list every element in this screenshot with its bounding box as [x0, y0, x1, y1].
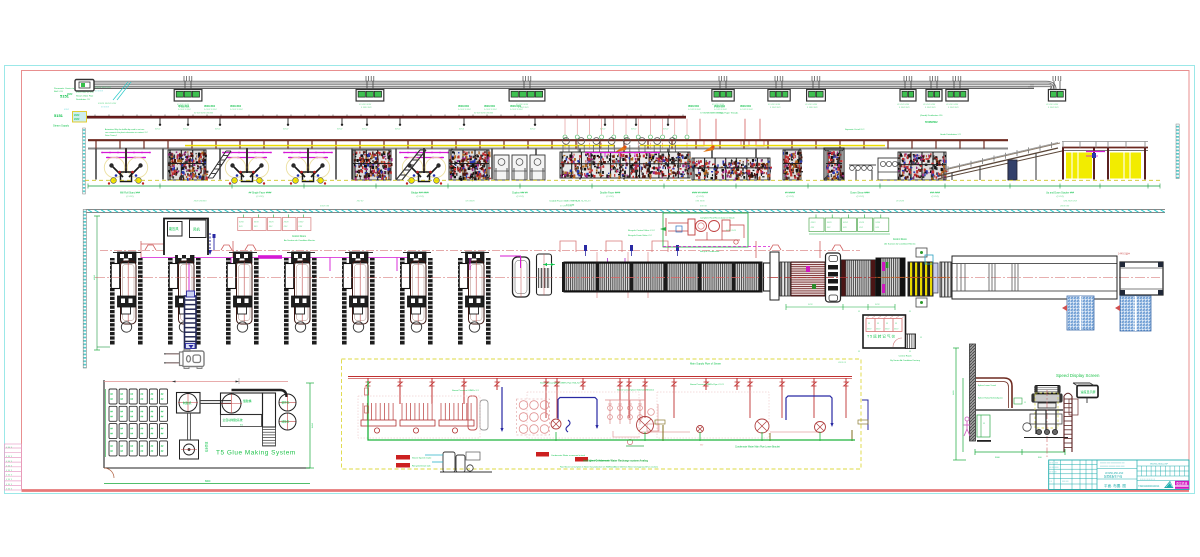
- svg-text:4516-504: 4516-504: [204, 104, 215, 108]
- svg-text:####: ####: [953, 390, 955, 395]
- svg-text:#### ####: #### ####: [726, 230, 737, 232]
- svg-text:## # ###: ## # ###: [1049, 472, 1056, 474]
- svg-text:####: ####: [64, 109, 70, 111]
- svg-text:# ## #: # ## #: [6, 461, 13, 463]
- svg-text:##### ##### ####: ##### ##### ####: [98, 103, 117, 105]
- svg-text:### ##: ### ##: [700, 206, 707, 208]
- svg-text:## ### ####: ## ### ####: [923, 104, 936, 106]
- svg-text:胶水管道: 胶水管道: [204, 441, 208, 452]
- svg-text:####: ####: [74, 114, 80, 117]
- svg-text:#### ##: #### ##: [838, 362, 847, 364]
- svg-text:### #### ###: ### #### ###: [1063, 201, 1077, 203]
- svg-text:###.#: ###.#: [459, 129, 465, 131]
- svg-text:循环泵:: 循环泵:: [281, 401, 290, 405]
- svg-text:#.# ### # ####: #.# ### # ####: [510, 109, 524, 111]
- svg-text:###.#: ###.#: [155, 129, 161, 131]
- svg-text:## ####: ## ####: [896, 201, 905, 203]
- svg-text:####: ####: [808, 304, 813, 306]
- svg-text:4516-504: 4516-504: [688, 104, 699, 108]
- svg-text:#.# ### # ####: #.# ### # ####: [484, 109, 498, 111]
- svg-text:### ##: ### ##: [357, 201, 364, 203]
- svg-text:## ### ####: ## ### ####: [560, 206, 573, 208]
- svg-text:# #### ###: # #### ###: [361, 107, 372, 109]
- svg-text:#### ###: #### ###: [1060, 206, 1070, 208]
- svg-text:(# ###): (# ###): [257, 196, 264, 198]
- svg-text:3000: 3000: [995, 457, 1000, 459]
- svg-text:制胶机: 制胶机: [183, 401, 192, 405]
- svg-text:## Single Facer ####: ## Single Facer ####: [249, 192, 272, 195]
- svg-text:### ####: ### ####: [696, 201, 706, 203]
- svg-text:###.#: ###.#: [183, 129, 189, 131]
- svg-text:瓦楞纸板生产线: 瓦楞纸板生产线: [1104, 475, 1122, 479]
- svg-text:#### ###: #### ###: [320, 206, 330, 208]
- svg-text:####: ####: [827, 222, 833, 224]
- svg-text:# #### ###: # #### ###: [807, 107, 818, 109]
- svg-text:####: ####: [299, 222, 305, 224]
- svg-text:#.# ### # ####: #.# ### # ####: [458, 109, 472, 111]
- svg-text:7191914004914#14: 7191914004914#14: [1138, 485, 1160, 488]
- svg-text:#.# ### # ####: #.# ### # ####: [204, 109, 218, 111]
- svg-text:T5 Glue Making System: T5 Glue Making System: [216, 450, 296, 457]
- svg-text:## #####: ## #####: [785, 192, 796, 195]
- svg-text:# ## #: # ## #: [6, 484, 13, 486]
- svg-text:# #### ###: # #### ###: [770, 107, 781, 109]
- svg-text:Up and Down Stacker ###: Up and Down Stacker ###: [1046, 192, 1075, 195]
- svg-text:#### ######: #### ######: [194, 201, 208, 203]
- svg-text:(# ###): (# ###): [517, 196, 524, 198]
- svg-text:5151: 5151: [60, 94, 70, 99]
- svg-text:4516-504: 4516-504: [178, 104, 189, 108]
- svg-text:Speed Display Screen: Speed Display Screen: [1056, 373, 1100, 378]
- svg-text:######## ####### #### ####: ######## ####### #### ####: [1100, 466, 1124, 468]
- svg-text:## ### #### ######: ## ### #### ######: [194, 112, 214, 114]
- svg-text:###.#: ###.#: [337, 129, 343, 131]
- svg-text:## ### ####: ## ### ####: [1046, 104, 1059, 106]
- svg-text:###.#: ###.#: [362, 129, 368, 131]
- svg-text:WJ150-250-1SF: WJ150-250-1SF: [1105, 472, 1124, 475]
- svg-text:(# ###): (# ###): [932, 196, 939, 198]
- svg-text:## #: ## #: [1049, 462, 1053, 464]
- svg-text:#.# ### # ####: #.# ### # ####: [740, 109, 754, 111]
- svg-text:###.#: ###.#: [631, 129, 637, 131]
- svg-text:平面. 布置. 图: 平面. 布置. 图: [1104, 483, 1126, 488]
- svg-text:#.# ### # ####: #.# ### # ####: [178, 109, 192, 111]
- svg-text:(# ###): (# ###): [607, 196, 614, 198]
- svg-text:(# ###): (# ###): [127, 196, 134, 198]
- svg-text:####: ####: [269, 222, 275, 224]
- svg-text:##### #### ###: ##### #### ###: [95, 87, 112, 89]
- svg-text:####: ####: [843, 222, 849, 224]
- svg-text:储胶桶: 储胶桶: [243, 399, 252, 403]
- svg-text:4516-504: 4516-504: [510, 104, 521, 108]
- svg-text:####: ####: [239, 222, 245, 224]
- svg-text:####: ####: [859, 222, 865, 224]
- svg-text:速度显示屏: 速度显示屏: [1081, 389, 1096, 394]
- svg-text:4516-504: 4516-504: [740, 104, 751, 108]
- svg-text:(# ###): (# ###): [697, 196, 704, 198]
- svg-text:#### ## #####: #### ## #####: [692, 192, 709, 195]
- svg-text:## ####: ## ####: [95, 90, 104, 92]
- svg-text:5m: 5m: [240, 425, 243, 427]
- svg-text:T 5 运 转 记 气 仪: T 5 运 转 记 气 仪: [867, 334, 895, 339]
- svg-text:7150597012: 7150597012: [925, 122, 938, 124]
- svg-text:# ## # # # ## # # #: # ## # # # ## # # #: [1140, 479, 1155, 481]
- svg-text:4516-504: 4516-504: [484, 104, 495, 108]
- svg-text:能压风: 能压风: [169, 226, 179, 231]
- svg-text:### ####: ### ####: [930, 192, 941, 195]
- svg-text:####: ####: [875, 222, 881, 224]
- svg-text:## #####: ## #####: [465, 201, 475, 203]
- svg-text:WJ250-2500-2-SF: WJ250-2500-2-SF: [1150, 463, 1169, 465]
- svg-text:## ### ####: ## ### ####: [805, 104, 818, 106]
- svg-text:###: ###: [1055, 462, 1058, 464]
- svg-text:# ## #: # ## #: [6, 475, 13, 477]
- svg-text:(# ###): (# ###): [417, 196, 424, 198]
- svg-text:## ### ####: ## ### ####: [946, 104, 959, 106]
- svg-text:4516-504: 4516-504: [230, 104, 241, 108]
- svg-text:4516-504: 4516-504: [458, 104, 469, 108]
- svg-text:#### #### ## ###: #### #### ## ###: [76, 92, 94, 94]
- svg-text:1449.5@#: 1449.5@#: [1118, 251, 1131, 255]
- svg-text:全自动制胶系统: 全自动制胶系统: [222, 417, 242, 422]
- svg-text:# #### ###: # #### ###: [899, 107, 910, 109]
- svg-text:####: ####: [811, 222, 817, 224]
- svg-text:### ###: ### ###: [1062, 481, 1069, 483]
- svg-text:## ### ####: ## ### ####: [359, 104, 372, 106]
- svg-text:## ### ####: ## ### ####: [768, 104, 781, 106]
- svg-text:####: ####: [254, 222, 260, 224]
- svg-text:Duplex ### ##: Duplex ### ##: [512, 192, 528, 195]
- svg-text:Main Supply Pipe of Steam: Main Supply Pipe of Steam: [690, 361, 721, 365]
- svg-text:Intelligent Condensate Water R: Intelligent Condensate Water Recharge sy…: [583, 460, 648, 463]
- svg-text:# ## #: # ## #: [6, 466, 13, 468]
- svg-text:####: ####: [312, 422, 314, 428]
- svg-text:####: ####: [284, 222, 290, 224]
- svg-text:###.#: ###.#: [663, 129, 669, 131]
- svg-text:## ### #### ######: ## ### #### ######: [474, 112, 494, 114]
- svg-text:Mill Roll Stand ###: Mill Roll Stand ###: [120, 192, 141, 195]
- svg-text:8000: 8000: [205, 480, 211, 483]
- svg-text:风机: 风机: [193, 227, 200, 232]
- svg-text:# #### ###: # #### ###: [925, 107, 936, 109]
- svg-text:鼎龙机械: 鼎龙机械: [1176, 482, 1187, 486]
- svg-text:Down Shear ####: Down Shear ####: [850, 192, 870, 195]
- svg-text:5151: 5151: [54, 113, 64, 118]
- svg-text:## ####: ## ####: [101, 107, 110, 109]
- svg-text:####: ####: [94, 274, 96, 280]
- svg-text:#.# ### # ####: #.# ### # ####: [688, 109, 702, 111]
- svg-text:# ## #: # ## #: [6, 456, 13, 458]
- svg-text:(# ###): (# ###): [787, 196, 794, 198]
- svg-text:(# ###): (# ###): [1057, 196, 1064, 198]
- svg-text:###.#: ###.#: [600, 129, 606, 131]
- svg-text:###.#: ###.#: [283, 129, 289, 131]
- svg-text:###.#: ###.#: [395, 129, 401, 131]
- svg-text:# ## #: # ## #: [6, 479, 13, 481]
- svg-text:## ### ####: ## ### ####: [897, 104, 910, 106]
- svg-text:###.#: ###.#: [215, 129, 221, 131]
- svg-text:# #### ###: # #### ###: [948, 107, 959, 109]
- svg-text:Double Facer ####: Double Facer ####: [600, 192, 621, 195]
- svg-text:# ## #: # ## #: [6, 470, 13, 472]
- svg-text:(# ###): (# ###): [857, 196, 864, 198]
- svg-text:####: ####: [875, 304, 880, 306]
- svg-text:#.# ### # ####: #.# ### # ####: [714, 109, 728, 111]
- svg-text:####: ####: [74, 118, 80, 121]
- svg-text:###.#: ###.#: [530, 129, 536, 131]
- svg-text:# #### ###: # #### ###: [1048, 107, 1059, 109]
- svg-text:#.# ### # ####: #.# ### # ####: [230, 109, 244, 111]
- svg-text:## ## ####: ## ## ####: [1049, 467, 1058, 469]
- svg-text:Steam Supply: Steam Supply: [53, 123, 70, 127]
- svg-text:# ## #: # ## #: [6, 489, 13, 491]
- svg-text:储备泵: 储备泵: [281, 420, 289, 424]
- svg-text:# ## #: # ## #: [6, 447, 13, 449]
- svg-text:Bridge ### ####: Bridge ### ####: [411, 192, 429, 195]
- svg-text:4516-504: 4516-504: [714, 104, 725, 108]
- svg-text:# #: # #: [1049, 481, 1052, 483]
- svg-text:###### #### ########## ###: ###### #### ########## ###: [1100, 462, 1124, 464]
